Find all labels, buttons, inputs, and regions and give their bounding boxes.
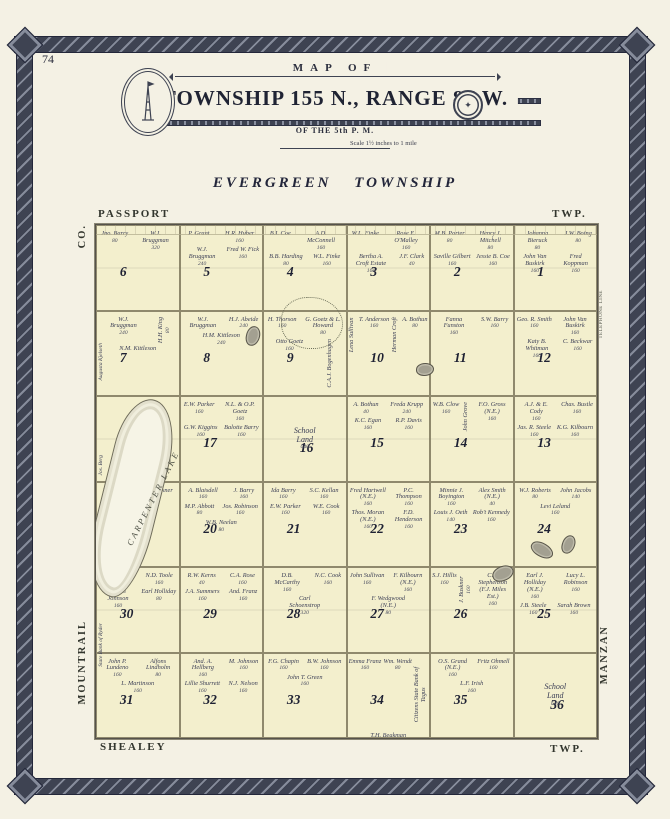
owner-label: R.W. Kerns40 <box>188 573 216 586</box>
owner-label: W.J. Bruggman240 <box>105 317 142 343</box>
edge-label-south-east: TWP. <box>550 743 585 755</box>
owner-label: W.J. Bruggman240 <box>183 247 220 267</box>
owner-label: Geo. R. Smith160 <box>517 317 552 337</box>
section-7: W.J. Bruggman240H.H. King80N.M. Kittleso… <box>96 311 180 397</box>
owner-label: W.J. Roberts80 <box>519 488 551 501</box>
owner-label: Rob't Kennedy160 <box>473 510 510 523</box>
owner-label: John Van Buskirk160 <box>556 317 593 337</box>
owner-label: A. Bothun80 <box>402 317 427 352</box>
owner-label: N.L. & O.P. Goetz160 <box>221 402 258 422</box>
border-corner-ornament <box>619 27 656 64</box>
owner-label: N.J. Nelson160 <box>229 681 258 694</box>
owner-label: Earl J. Holliday (N.E.)160 <box>516 573 553 600</box>
owner-label: Fred Koppman160 <box>557 254 594 274</box>
section-2: M.B. Porter80Henry J. Mitchell80Saville … <box>430 225 514 311</box>
section-25: Earl J. Holliday (N.E.)160Lucy L. Robins… <box>514 567 598 653</box>
section-10: Lena SullivanT. Anderson160Herman CroftA… <box>347 311 431 397</box>
owner-label: Thos. Moran (N.E.)160 <box>349 510 386 530</box>
owner-label: A.D. McConnell160 <box>302 231 339 251</box>
township-heading: EVERGREEN TOWNSHIP <box>0 175 670 192</box>
section-8: W.J. BruggmanH.J. Abeide240H.M. Kittleso… <box>180 311 264 397</box>
owner-label: P. Grant <box>188 231 209 244</box>
owner-label: T.H. Beakman160 <box>370 733 406 738</box>
owner-label: W.J. Bruggman320 <box>137 231 174 251</box>
section-29: R.W. Kerns40C.A. Rose160J.A. Summers160A… <box>180 567 264 653</box>
section-24: W.J. Roberts80John Jacobs140Levi Leland1… <box>514 482 598 568</box>
owner-label: F. Kilbourn (N.E.)160 <box>389 573 426 593</box>
owner-label: E.W. Parker160 <box>270 504 301 517</box>
section-13: A.J. & E. Cody160Chas. Bustle160Jas. R. … <box>514 396 598 482</box>
owner-label: Herman Croft <box>392 317 399 352</box>
border-corner-ornament <box>7 27 44 64</box>
west-strip-owner: State Bank of Ryder <box>98 623 104 667</box>
owner-label: Saville Gilbert160 <box>434 254 471 267</box>
owner-label: T. Anderson160 <box>359 317 389 352</box>
border-corner-ornament <box>619 768 656 805</box>
owner-label: Henry J. Mitchell80 <box>472 231 509 251</box>
owner-label: Emma Franz160 <box>349 659 382 730</box>
owner-label: John T. Green160 <box>287 675 323 688</box>
section-11: Fanna Funston160S.W. Barry16011 <box>430 311 514 397</box>
owner-label: Wm. Wendt80 <box>383 659 411 730</box>
owner-label: J.A. Summers160 <box>185 589 219 602</box>
owner-label: Sarah Brown160 <box>557 603 590 616</box>
owner-label: C.A.J. Bogenhagen <box>327 339 334 388</box>
owner-label: S.J. Hillis160 <box>432 573 457 607</box>
map-subtitle: OF THE 5th P. M. <box>288 126 382 135</box>
owner-label: C.A. Rose160 <box>230 573 255 586</box>
owner-label: Bertha A. Croft Estate160 <box>352 254 389 274</box>
section-31: John P. Lundeno160Alfons Lindholm80L. Ma… <box>96 653 180 739</box>
owner-label: A. Bothun40 <box>353 402 378 415</box>
owner-label: N.C. Cook160 <box>315 573 341 593</box>
owner-label: F. Wedgwood (N.E.)80 <box>370 596 407 616</box>
section-5: P. GrantH.R. Huber160W.J. Bruggman240Fre… <box>180 225 264 311</box>
owner-label: W.L. Finke160 <box>313 254 340 267</box>
owner-label: Chas. Bustle160 <box>561 402 593 422</box>
owner-label: Jessie B. Coe160 <box>476 254 510 267</box>
plat-map: Jno. Barry80W.J. Bruggman3206P. GrantH.R… <box>95 224 598 739</box>
section-35: O.S. Grand (N.E.)160Fritz Ohmell160L.F. … <box>430 653 514 739</box>
west-strip-owner: Jos. Berg <box>98 455 104 476</box>
edge-label-east-township: MANZAN <box>599 625 610 684</box>
owner-label: Carl Schoenstrop320 <box>286 596 323 616</box>
owner-label: B.I. Coe <box>270 231 291 251</box>
telephone-line-label: TELEPHONE LINE <box>599 290 604 339</box>
owner-label: M. Johnson160 <box>229 659 258 679</box>
owner-label: Alfons Lindholm80 <box>139 659 176 679</box>
owner-label: Fred Hartwell (N.E.)160 <box>349 488 386 508</box>
section-33: F.G. Chapin160B.W. Johnson160John T. Gre… <box>263 653 347 739</box>
section-17: E.W. Parker160N.L. & O.P. Goetz160G.W. K… <box>180 396 264 482</box>
section-15: A. Bothun40Freda Krupp240K.C. Egan160R.P… <box>347 396 431 482</box>
section-36: School Land64036 <box>514 653 598 739</box>
owner-label: A.J. & E. Cody160 <box>518 402 555 422</box>
owner-label: W.B. Clow160 <box>433 402 460 431</box>
section-34: Emma Franz160Wm. Wendt80Citizens State B… <box>347 653 431 739</box>
owner-label: Louis J. Oeth140 <box>434 510 468 523</box>
section-28: D.B. McCarthy160N.C. Cook160Carl Schoens… <box>263 567 347 653</box>
owner-label: B.B. Harding80 <box>269 254 303 267</box>
owner-label: John Jacobs140 <box>560 488 591 501</box>
owner-label: Jas. R. Steele160 <box>517 425 551 438</box>
section-12: Geo. R. Smith160John Van Buskirk160Katy … <box>514 311 598 397</box>
owner-label: A. Blaisdell160 <box>188 488 217 501</box>
owner-label: B.W. Johnson160 <box>307 659 341 672</box>
owner-label: W.J. Bruggman <box>184 317 221 331</box>
owner-label: M.P. Abbott80 <box>185 504 215 517</box>
owner-label: O.S. Grand (N.E.)160 <box>434 659 471 679</box>
west-strip-owner: Augusta Kjelseth <box>98 343 104 380</box>
owner-label: Alex Smith (N.E.)40 <box>473 488 510 508</box>
owner-label: Earl Holliday80 <box>141 589 176 609</box>
owner-label: Katy B. Whitman160 <box>518 339 555 359</box>
owner-label: K.G. Kilbourn160 <box>557 425 593 438</box>
owner-label: S.W. Barry160 <box>481 317 508 337</box>
section-27: John Sullivan160F. Kilbourn (N.E.)160F. … <box>347 567 431 653</box>
section-23: Minnie J. Boyington160Alex Smith (N.E.)4… <box>430 482 514 568</box>
owner-label: Minnie J. Boyington160 <box>433 488 470 508</box>
owner-label: John Sullivan160 <box>350 573 384 593</box>
owner-label: N.D. Toole160 <box>145 573 172 586</box>
owner-label: F.O. Gross (N.E.)160 <box>473 402 510 431</box>
edge-label-north-east: TWP. <box>552 208 587 220</box>
owner-label: F.D. Henderson160 <box>390 510 427 530</box>
page-number: 74 <box>42 52 54 67</box>
owner-label: K.C. Egan160 <box>355 418 381 431</box>
section-3: W.L. FinkeRose E. O'Malley160Bertha A. C… <box>347 225 431 311</box>
owner-label: And. A. Hellberg160 <box>184 659 221 679</box>
ornate-border-left <box>16 36 33 795</box>
owner-label: Johanna Bieruck80 <box>519 231 556 251</box>
owner-label: S.C. Kellan160 <box>310 488 339 501</box>
owner-label: Fanna Funston160 <box>435 317 472 337</box>
banner-flourish-line <box>175 76 495 77</box>
owner-label: Levi Leland160 <box>540 504 570 517</box>
owner-label: D.B. McCarthy160 <box>268 573 305 593</box>
owner-label: L. Martinson160 <box>121 681 154 694</box>
ornate-border-bottom <box>14 778 648 795</box>
owner-label: Lucy L. Robinson160 <box>557 573 594 600</box>
owner-label: Jno. Barry80 <box>101 231 128 251</box>
owner-label: P.C. Thompson160 <box>390 488 427 508</box>
owner-label: Jos. Robinson160 <box>223 504 258 517</box>
owner-label: J.F. Clark40 <box>399 254 424 274</box>
owner-label: E.W. Parker160 <box>184 402 215 422</box>
owner-label: R.P. Davis160 <box>396 418 422 431</box>
owner-label: W.B. Neelan80 <box>206 520 237 533</box>
owner-label: Rose E. O'Malley160 <box>387 231 424 251</box>
edge-label-south-west: SHEALEY <box>100 741 167 753</box>
owner-label: John Grove <box>463 402 470 431</box>
section-16: School Land64016 <box>263 396 347 482</box>
section-14: W.B. Clow160John GroveF.O. Gross (N.E.)1… <box>430 396 514 482</box>
edge-label-west-county: MOUNTRAIL <box>77 620 88 705</box>
owner-label: J. Buskner160 <box>459 573 472 607</box>
section-22: Fred Hartwell (N.E.)160P.C. Thompson160T… <box>347 482 431 568</box>
section-6: Jno. Barry80W.J. Bruggman3206 <box>96 225 180 311</box>
dotted-parcel-outline <box>281 297 343 349</box>
owner-label: School Land640 <box>537 683 574 707</box>
owner-label: And. Franz160 <box>229 589 257 602</box>
section-1: Johanna Bieruck80J.W. Boing80John Van Bu… <box>514 225 598 311</box>
owner-label: Ida Barry160 <box>271 488 296 501</box>
owner-label: H.H. King80 <box>158 317 171 343</box>
owner-label: John P. Lundeno160 <box>99 659 136 679</box>
owner-label: H.R. Huber160 <box>225 231 254 244</box>
owner-label: J. Barry160 <box>233 488 254 501</box>
owner-label: Lena Sullivan <box>349 317 356 352</box>
border-corner-ornament <box>7 768 44 805</box>
owner-label: Fred W. Fick160 <box>227 247 260 267</box>
ornate-border-top <box>14 36 648 53</box>
section-21: Ida Barry160S.C. Kellan160E.W. Parker160… <box>263 482 347 568</box>
owner-label: C. Beckwar160 <box>563 339 592 359</box>
atlas-page: 74 MAP OF TOWNSHIP 155 N., RANGE 87 W. O… <box>0 0 670 819</box>
owner-label: N.M. Kittleson <box>119 346 156 353</box>
owner-label: M.B. Porter80 <box>434 231 464 251</box>
compass-seal-icon: ✦ <box>453 90 483 120</box>
edge-label-north-west: PASSPORT <box>98 208 170 220</box>
section-grid: Jno. Barry80W.J. Bruggman3206P. GrantH.R… <box>96 225 597 738</box>
ornate-border-right <box>629 36 646 795</box>
banner-flourish-line <box>280 148 390 149</box>
owner-label: Freda Krupp240 <box>390 402 423 415</box>
title-banner: MAP OF TOWNSHIP 155 N., RANGE 87 W. OF T… <box>95 56 575 156</box>
banner-arc-text: MAP OF <box>283 62 387 74</box>
owner-label: W.L. Finke <box>352 231 379 251</box>
section-32: And. A. Hellberg160M. Johnson160Lillie S… <box>180 653 264 739</box>
owner-label: J.W. Boing80 <box>565 231 592 251</box>
owner-label: W.E. Cook160 <box>313 504 340 517</box>
owner-label: Fritz Ohmell160 <box>477 659 509 679</box>
owner-label: Lillie Shurrett160 <box>185 681 220 694</box>
owner-label: J.B. Steele160 <box>520 603 546 616</box>
owner-label: John Van Buskirk160 <box>516 254 553 274</box>
section-20: A. Blaisdell160J. Barry160M.P. Abbott80J… <box>180 482 264 568</box>
owner-label: Balotte Barry160 <box>224 425 258 438</box>
owner-label: F.G. Chapin160 <box>268 659 299 672</box>
owner-label: Citizens State Bank of Tagus <box>414 659 428 730</box>
scale-note: Scale 1½ inches to 1 mile <box>350 140 417 147</box>
owner-label: H.M. Kittleson240 <box>203 333 240 346</box>
owner-label: School Land640 <box>286 427 323 451</box>
derrick-vignette-icon <box>121 68 175 136</box>
edge-label-west-county-abbr: CO. <box>77 224 88 248</box>
owner-label: L.F. Irish160 <box>460 681 483 694</box>
